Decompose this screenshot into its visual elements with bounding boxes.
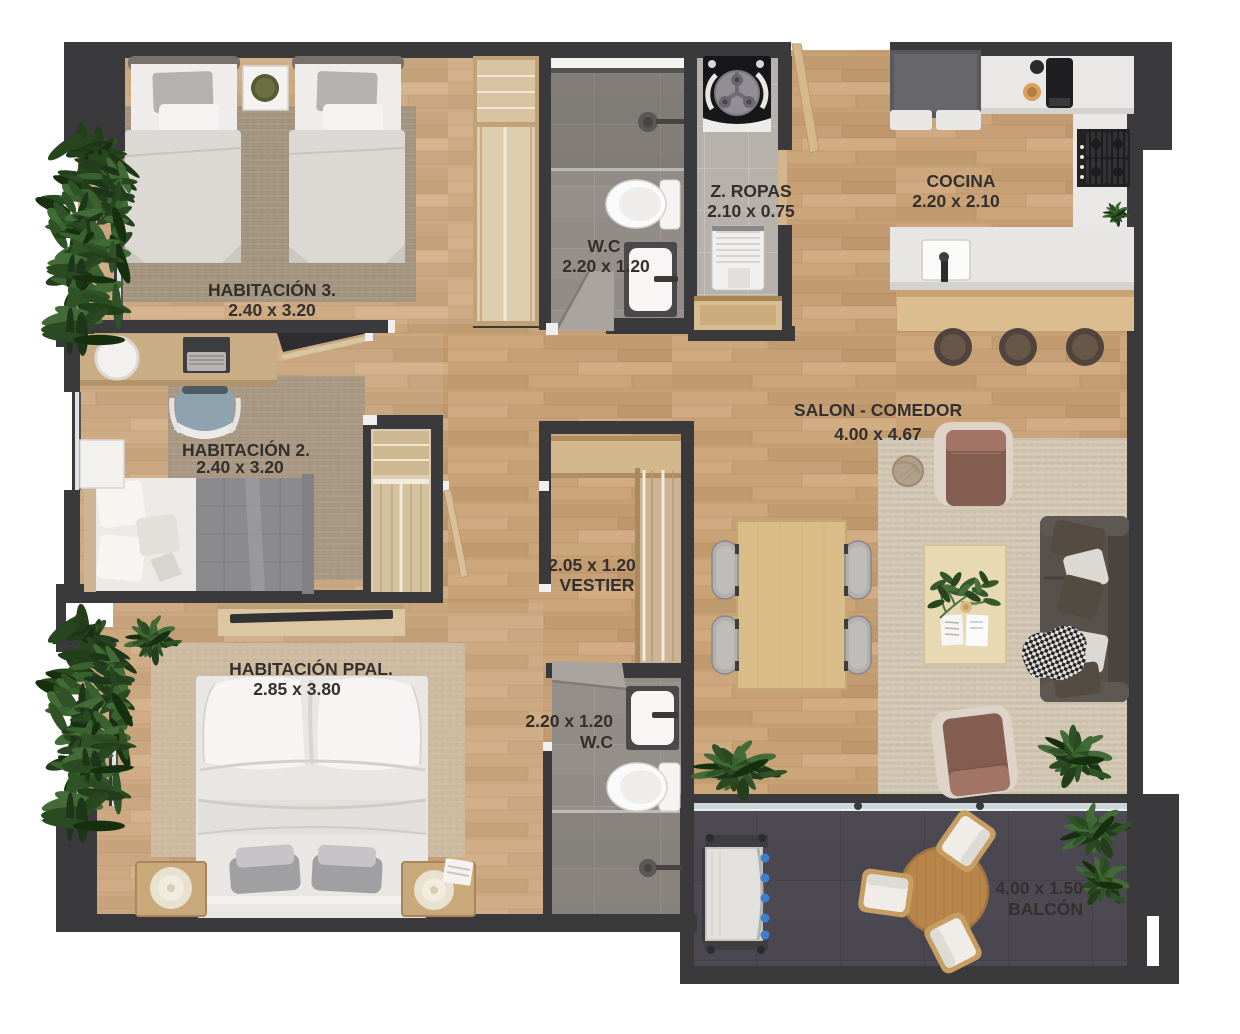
svg-text:W.C: W.C <box>580 732 613 752</box>
svg-text:HABITACIÓN PPAL.: HABITACIÓN PPAL. <box>229 658 393 679</box>
svg-text:2.40 x 3.20: 2.40 x 3.20 <box>228 300 316 320</box>
svg-text:2.40 x 3.20: 2.40 x 3.20 <box>196 457 284 477</box>
svg-text:COCINA: COCINA <box>926 171 995 191</box>
svg-text:4.00 x 1.50: 4.00 x 1.50 <box>995 878 1083 898</box>
svg-text:HABITACIÓN 3.: HABITACIÓN 3. <box>208 279 336 300</box>
svg-text:2.20 x 1.20: 2.20 x 1.20 <box>562 256 650 276</box>
svg-text:4.00 x 4.67: 4.00 x 4.67 <box>834 424 922 444</box>
svg-text:2.85 x 3.80: 2.85 x 3.80 <box>253 679 341 699</box>
svg-text:Z. ROPAS: Z. ROPAS <box>710 181 791 201</box>
svg-text:2.05 x 1.20: 2.05 x 1.20 <box>548 555 636 575</box>
svg-text:2.20 x 1.20: 2.20 x 1.20 <box>525 711 613 731</box>
svg-text:VESTIER: VESTIER <box>560 575 635 595</box>
svg-text:2.10 x 0.75: 2.10 x 0.75 <box>707 201 795 221</box>
svg-text:BALCÓN: BALCÓN <box>1008 898 1083 919</box>
svg-text:SALON - COMEDOR: SALON - COMEDOR <box>794 400 963 420</box>
svg-text:W.C: W.C <box>587 236 620 256</box>
svg-text:2.20 x 2.10: 2.20 x 2.10 <box>912 191 1000 211</box>
